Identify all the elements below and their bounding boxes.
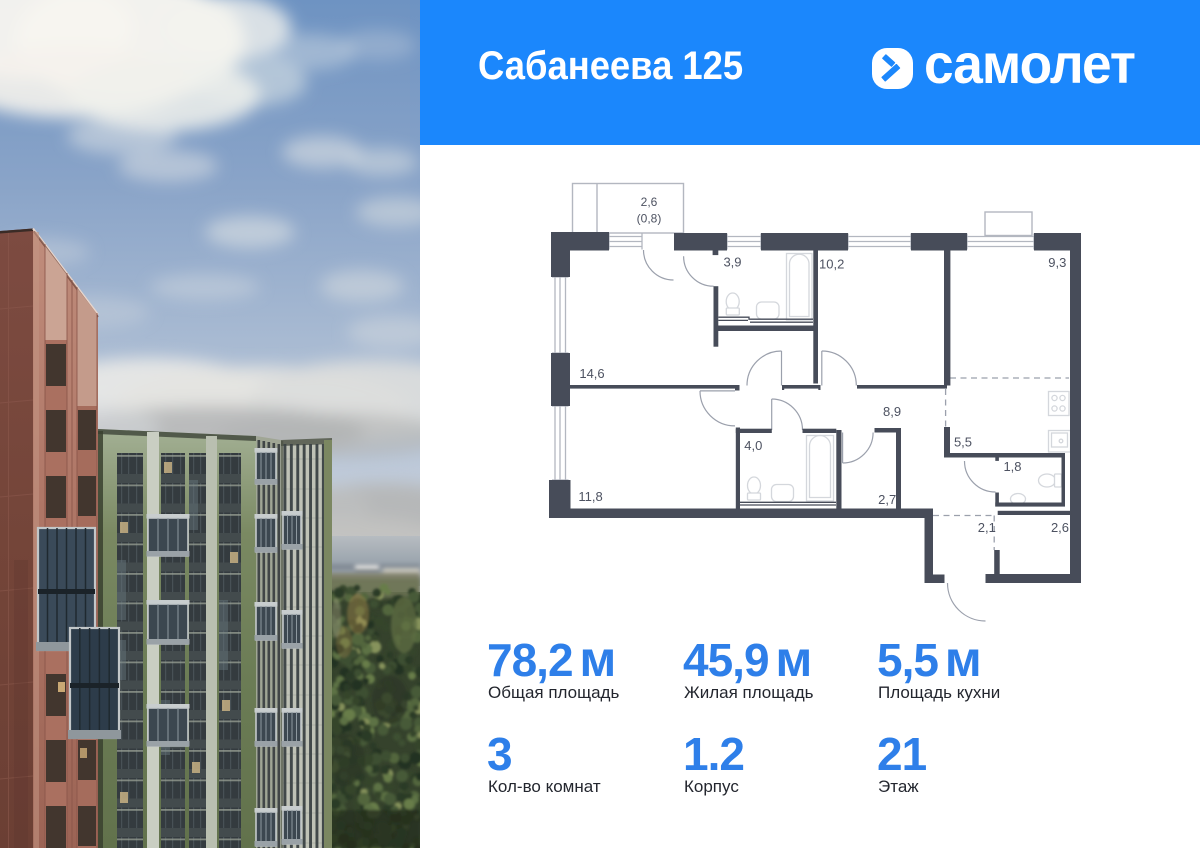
svg-text:2,1: 2,1: [978, 520, 996, 535]
svg-text:14,6: 14,6: [579, 366, 604, 381]
svg-text:4,0: 4,0: [744, 438, 762, 453]
svg-text:2,6: 2,6: [1051, 520, 1069, 535]
svg-text:2,6: 2,6: [641, 195, 658, 209]
svg-text:8,9: 8,9: [883, 404, 901, 419]
svg-text:9,3: 9,3: [1048, 255, 1066, 270]
svg-text:11,8: 11,8: [578, 489, 602, 504]
svg-text:3,9: 3,9: [723, 255, 741, 270]
svg-text:(0,8): (0,8): [637, 212, 662, 226]
svg-text:10,2: 10,2: [819, 257, 844, 272]
svg-text:5,5: 5,5: [954, 435, 972, 450]
svg-text:1,8: 1,8: [1003, 459, 1021, 474]
svg-text:2,7: 2,7: [878, 492, 896, 507]
